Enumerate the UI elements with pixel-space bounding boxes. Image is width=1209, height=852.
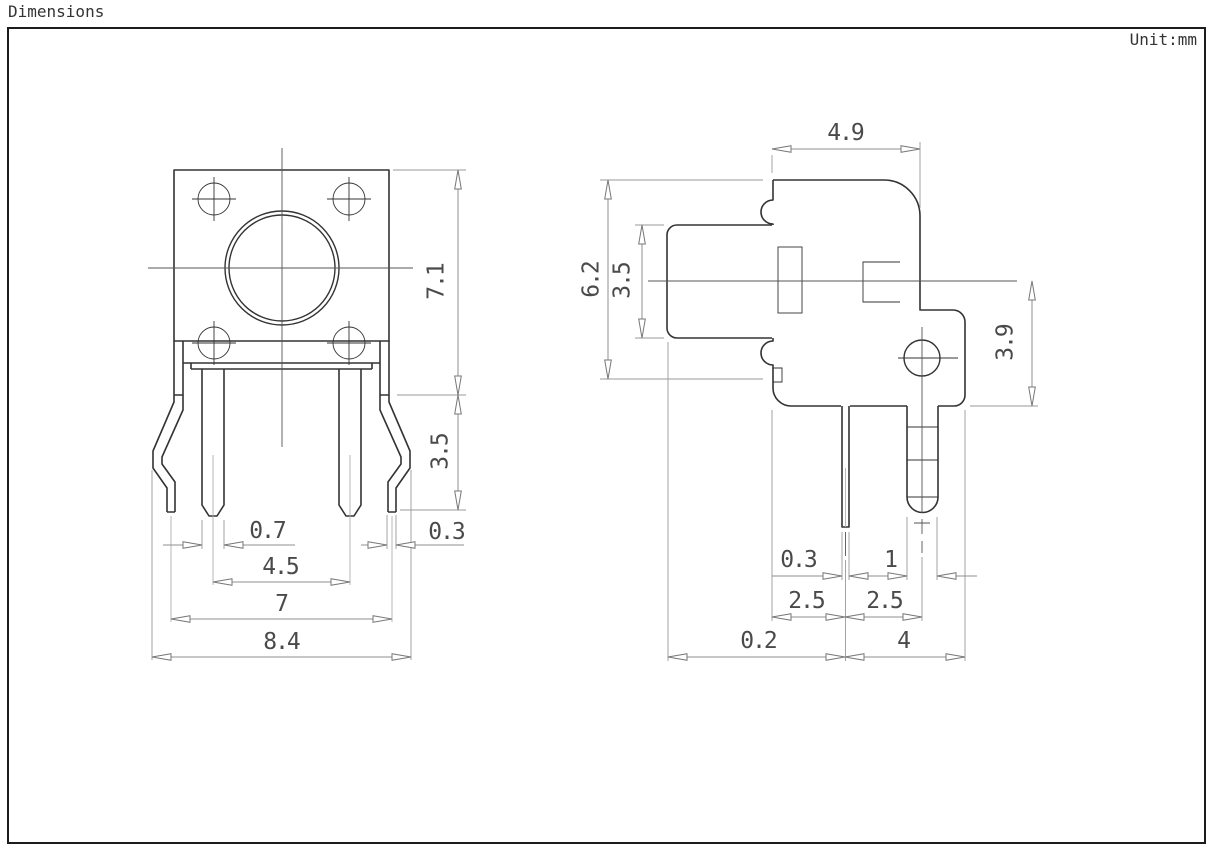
technical-drawing: Dimensions Unit:mm (0, 0, 1209, 852)
dim-front-tip-span: 7 (275, 591, 288, 617)
front-corner-holes (192, 177, 371, 365)
side-extension-lines (600, 142, 1038, 661)
dim-side-pin1-width: 0.3 (780, 547, 817, 573)
dim-side-body-height: 6.2 (579, 262, 605, 298)
front-body-outline (153, 170, 410, 516)
side-view-drawing: 4.9 6.2 3.5 3.9 0.3 1 2.5 2.5 0.2 4 (579, 120, 1039, 661)
front-extension-lines (152, 170, 466, 660)
side-centerlines (648, 281, 1017, 556)
drawing-border (8, 28, 1205, 843)
dim-side-stem-height: 3.5 (610, 263, 636, 299)
dim-front-overall-width: 8.4 (263, 629, 300, 655)
front-view-drawing: 7.1 3.5 0.7 0.3 4.5 7 8.4 (148, 148, 466, 660)
dim-side-top-width: 4.9 (827, 120, 864, 146)
dim-front-leg-height: 3.5 (428, 434, 454, 470)
dim-side-offset-left: 0.2 (740, 628, 776, 654)
unit-label: Unit:mm (1130, 30, 1197, 49)
side-body-outline (667, 180, 965, 527)
dim-front-pin-width: 0.7 (249, 518, 286, 544)
dim-side-lower-height: 3.9 (993, 324, 1019, 361)
side-mounting-hole (898, 340, 958, 376)
dim-side-pitch-left: 2.5 (788, 588, 824, 614)
side-dimension-lines (605, 146, 1036, 661)
front-dimension-lines (152, 170, 464, 660)
front-centerlines (148, 148, 413, 622)
side-stem-outline (667, 225, 772, 338)
dim-front-body-height: 7.1 (424, 263, 450, 300)
dim-front-pin-pitch: 4.5 (262, 554, 298, 580)
drawing-page: Dimensions Unit:mm (0, 0, 1209, 852)
dim-front-tip-width: 0.3 (428, 519, 465, 545)
dim-side-offset-right: 4 (897, 628, 910, 654)
page-title: Dimensions (8, 2, 104, 21)
dim-side-pitch-right: 2.5 (866, 588, 902, 614)
dim-side-pin2-width: 1 (884, 547, 897, 573)
